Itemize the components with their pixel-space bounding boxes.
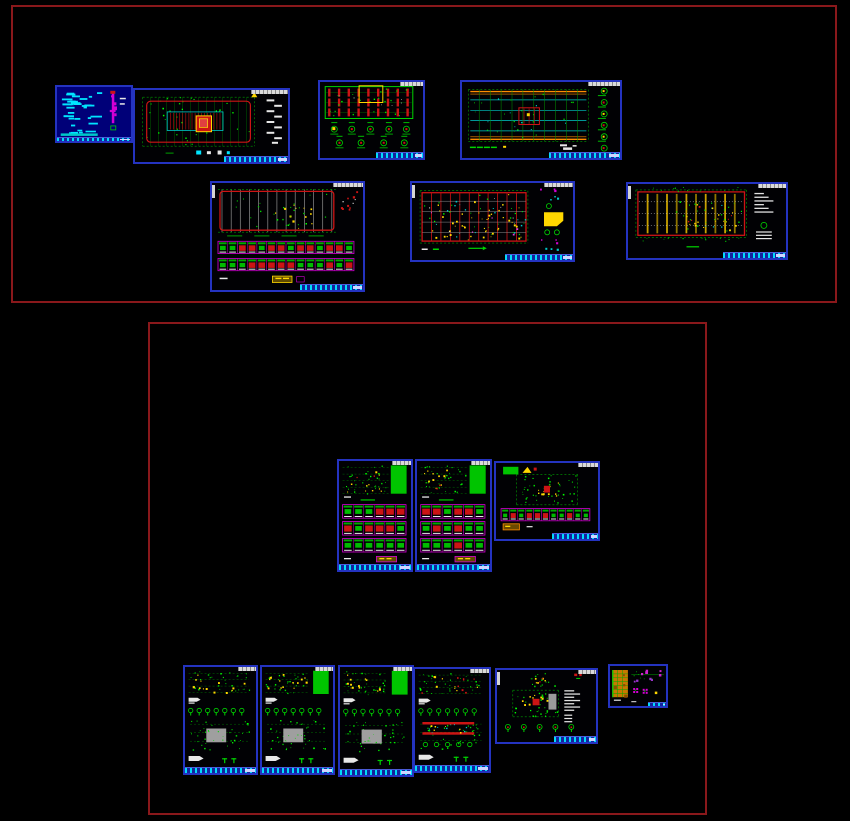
sheet-drawing-content	[212, 183, 363, 290]
sheet-title-bar	[340, 769, 412, 775]
sheet-corner-tag	[578, 463, 598, 467]
sheet-floor-plan[interactable]	[133, 88, 290, 164]
sheet-drawing-content	[462, 82, 620, 158]
sheet-corner-tag	[471, 461, 490, 465]
sheet-corner-tag	[578, 670, 596, 674]
sheet-title-bar-end	[120, 139, 130, 140]
sheet-title-bar	[417, 564, 490, 570]
sheet-detail-sheet-2[interactable]	[415, 459, 492, 572]
sheet-title-bar-end	[563, 256, 572, 259]
sheet-unit-plan-1[interactable]	[183, 665, 258, 775]
sheet-unit-plan-4[interactable]	[413, 667, 491, 773]
sheet-title-bar-end	[776, 254, 785, 257]
sheet-title-bar-end	[401, 771, 411, 774]
sheet-beam-layout-3[interactable]	[626, 182, 788, 260]
sheet-title-bar-end	[415, 154, 422, 157]
sheet-title-bar	[376, 152, 423, 158]
sheet-drawing-content	[610, 666, 666, 706]
sheet-corner-tag	[400, 82, 423, 86]
sheet-cover-sheet[interactable]	[55, 85, 133, 143]
sheet-title-bar	[224, 156, 288, 162]
sheet-corner-tag	[251, 90, 288, 94]
sheet-title-bar	[505, 254, 573, 260]
sheet-title-bar	[185, 767, 256, 773]
sheet-title-bar	[549, 152, 620, 158]
sheet-detail-sheet-1[interactable]	[337, 459, 413, 572]
sheet-drawing-content	[496, 463, 598, 539]
sheet-corner-tag	[758, 184, 786, 188]
sheet-schedule-sheet[interactable]	[608, 664, 668, 708]
sheet-drawing-content	[135, 90, 288, 162]
sheet-title-bar-end	[479, 566, 489, 569]
sheet-corner-tag	[392, 461, 411, 465]
sheet-corner-tag	[470, 669, 489, 673]
sheet-drawing-content	[628, 184, 786, 258]
sheet-drawing-content	[339, 461, 411, 570]
sheet-title-bar	[723, 252, 786, 258]
sheet-column-layout[interactable]	[318, 80, 425, 160]
sheet-beam-layout-1[interactable]	[460, 80, 622, 160]
sheet-left-tag	[212, 185, 215, 198]
sheet-corner-tag	[238, 667, 256, 671]
sheet-drawing-content	[417, 461, 490, 570]
sheet-drawing-content	[262, 667, 333, 773]
sheet-title-bar	[415, 765, 489, 771]
sheet-corner-tag	[588, 82, 620, 86]
sheet-title-bar-end	[245, 769, 255, 772]
sheet-title-bar-end	[322, 769, 332, 772]
sheet-beam-layout-2[interactable]	[410, 181, 575, 262]
sheet-unit-plan-3[interactable]	[338, 665, 414, 777]
sheet-foundation-plan[interactable]	[210, 181, 365, 292]
sheet-title-bar-end	[591, 535, 597, 538]
sheet-drawing-content	[57, 87, 131, 141]
sheet-corner-tag	[544, 183, 573, 187]
sheet-title-bar	[339, 564, 411, 570]
sheet-title-bar	[554, 736, 596, 742]
sheet-title-bar	[57, 137, 131, 141]
sheet-roof-detail[interactable]	[494, 461, 600, 541]
sheet-title-bar-end	[478, 767, 488, 770]
sheet-title-bar	[262, 767, 333, 773]
sheet-stair-plan[interactable]	[495, 668, 598, 744]
sheet-corner-tag	[393, 667, 412, 671]
sheet-corner-tag	[333, 183, 363, 187]
sheet-left-tag	[628, 186, 631, 199]
sheet-corner-tag	[315, 667, 333, 671]
sheet-unit-plan-2[interactable]	[260, 665, 335, 775]
sheet-title-bar	[300, 284, 363, 290]
sheet-title-bar-end	[278, 158, 287, 161]
sheet-left-tag	[497, 672, 500, 685]
sheet-drawing-content	[415, 669, 489, 771]
sheet-title-bar	[552, 533, 598, 539]
sheet-drawing-content	[320, 82, 423, 158]
sheet-title-bar	[648, 702, 666, 706]
model-space-canvas[interactable]	[0, 0, 850, 821]
sheet-title-bar-end	[400, 566, 410, 569]
sheet-drawing-content	[412, 183, 573, 260]
sheet-drawing-content	[497, 670, 596, 742]
sheet-drawing-content	[185, 667, 256, 773]
sheet-title-bar-end	[353, 286, 362, 289]
sheet-title-bar-end	[609, 154, 619, 157]
sheet-drawing-content	[340, 667, 412, 775]
sheet-left-tag	[412, 185, 415, 198]
sheet-title-bar-end	[663, 704, 666, 705]
sheet-title-bar-end	[589, 738, 595, 741]
